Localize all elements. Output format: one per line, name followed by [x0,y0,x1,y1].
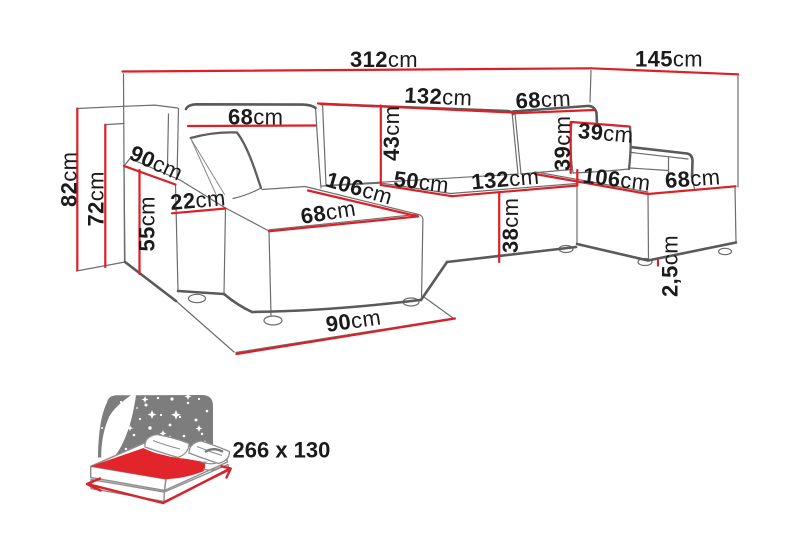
svg-text:68cm: 68cm [228,105,283,130]
svg-text:43cm: 43cm [379,106,404,161]
svg-text:68cm: 68cm [515,86,572,114]
svg-text:22cm: 22cm [169,185,226,215]
svg-text:72cm: 72cm [84,171,109,226]
svg-text:82cm: 82cm [56,152,81,207]
svg-text:132cm: 132cm [404,83,473,111]
svg-text:2,5cm: 2,5cm [658,235,683,297]
svg-text:55cm: 55cm [135,196,160,251]
svg-text:312cm: 312cm [350,47,418,72]
svg-text:145cm: 145cm [635,46,703,71]
svg-text:68cm: 68cm [664,164,721,193]
svg-text:39cm: 39cm [577,118,634,148]
svg-text:266 x 130: 266 x 130 [233,438,331,463]
svg-text:39cm: 39cm [550,116,575,171]
svg-text:38cm: 38cm [498,198,523,253]
